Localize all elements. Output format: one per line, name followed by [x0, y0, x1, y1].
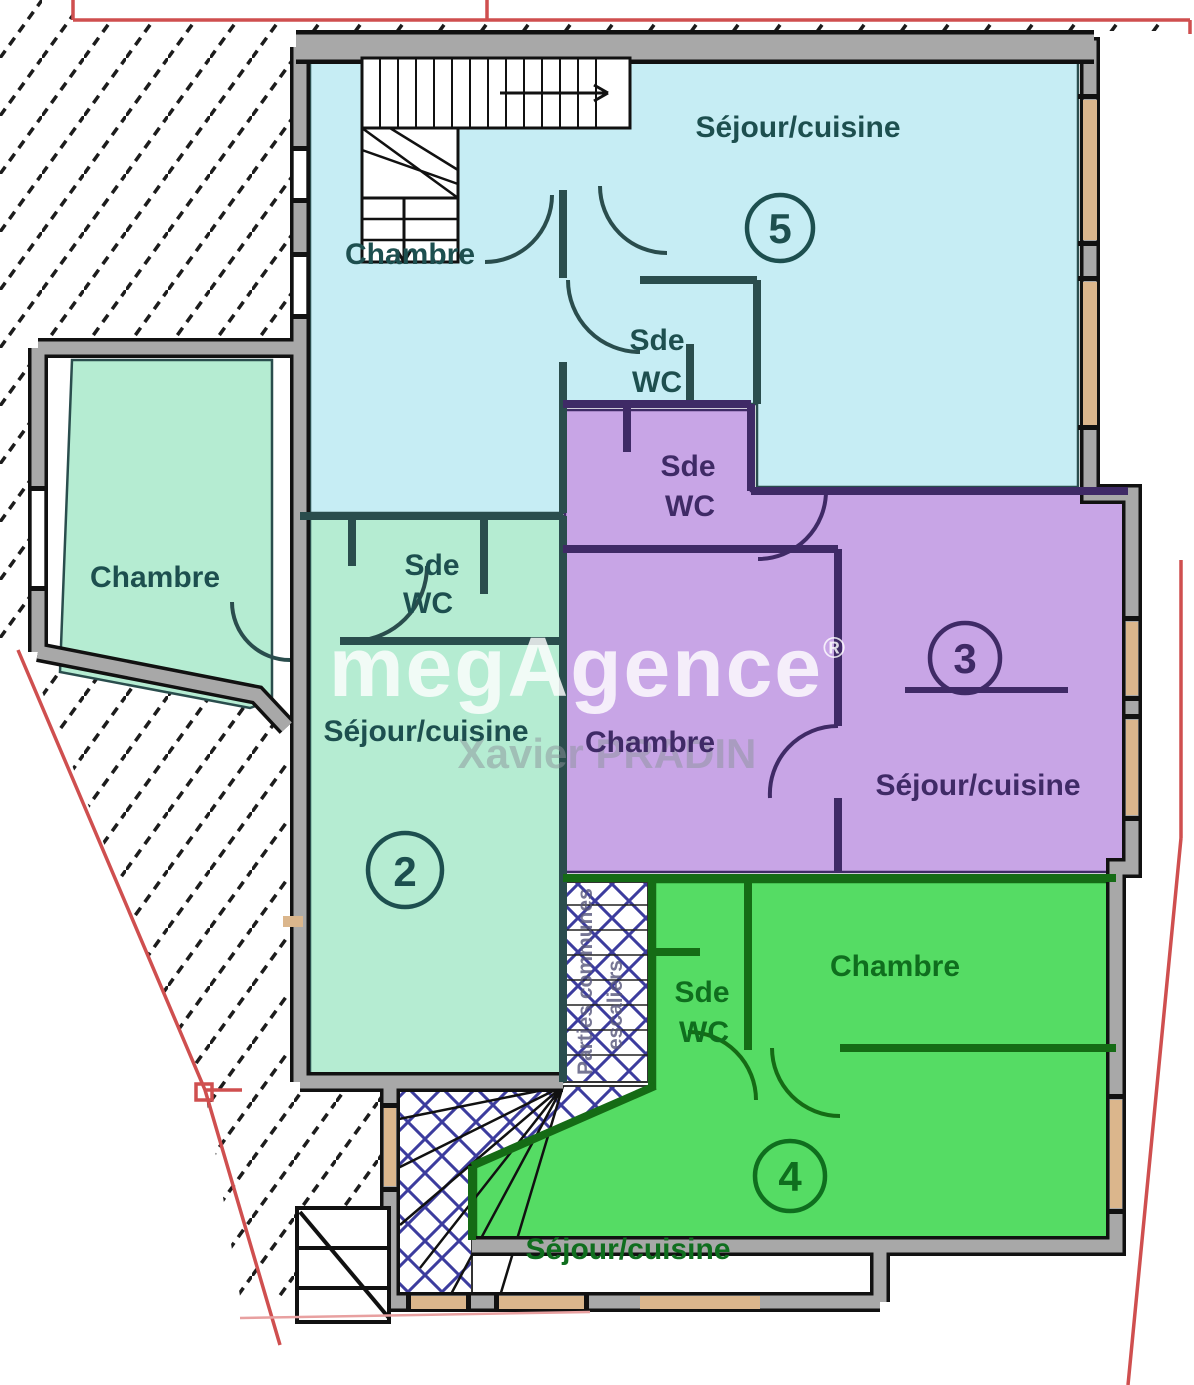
apt4-number: 4: [778, 1153, 802, 1200]
floor-plan: megAgence® Xavier PRADIN Séjour/cuisine …: [0, 0, 1194, 1385]
apt2-wc-label: WC: [403, 587, 453, 620]
apt3-number: 3: [953, 635, 976, 682]
apt3-sde-label: Sde: [660, 450, 715, 483]
apt5-sejour-label: Séjour/cuisine: [695, 111, 900, 144]
apt4-sde-label: Sde: [674, 976, 729, 1009]
apt4-wc-label: WC: [679, 1016, 729, 1049]
apt3-sejour-label: Séjour/cuisine: [875, 769, 1080, 802]
apt3-wc-label: WC: [665, 490, 715, 523]
apt5-number: 5: [768, 205, 791, 252]
apt2-sejour-label: Séjour/cuisine: [323, 715, 528, 748]
apt2-chambre-label: Chambre: [90, 561, 220, 594]
apt2-number: 2: [393, 848, 416, 895]
apt4-chambre-label: Chambre: [830, 950, 960, 983]
apt3-chambre-label: Chambre: [585, 726, 715, 759]
apt5-sde-label: Sde: [629, 324, 684, 357]
apt4-sejour-label: Séjour/cuisine: [525, 1233, 730, 1266]
watermark-brand: megAgence®: [329, 620, 847, 714]
commons-line1: Parties communes: [574, 888, 597, 1075]
floor-plan-svg: megAgence® Xavier PRADIN Séjour/cuisine …: [0, 0, 1194, 1385]
apt2-sde-label: Sde: [404, 549, 459, 582]
parcel-boundary-faint: [240, 1312, 590, 1318]
apt5-wc-label: WC: [632, 366, 682, 399]
commons-line2: escaliers: [604, 960, 627, 1050]
exterior-steps: [297, 1208, 389, 1322]
apt5-chambre-label: Chambre: [345, 238, 475, 271]
